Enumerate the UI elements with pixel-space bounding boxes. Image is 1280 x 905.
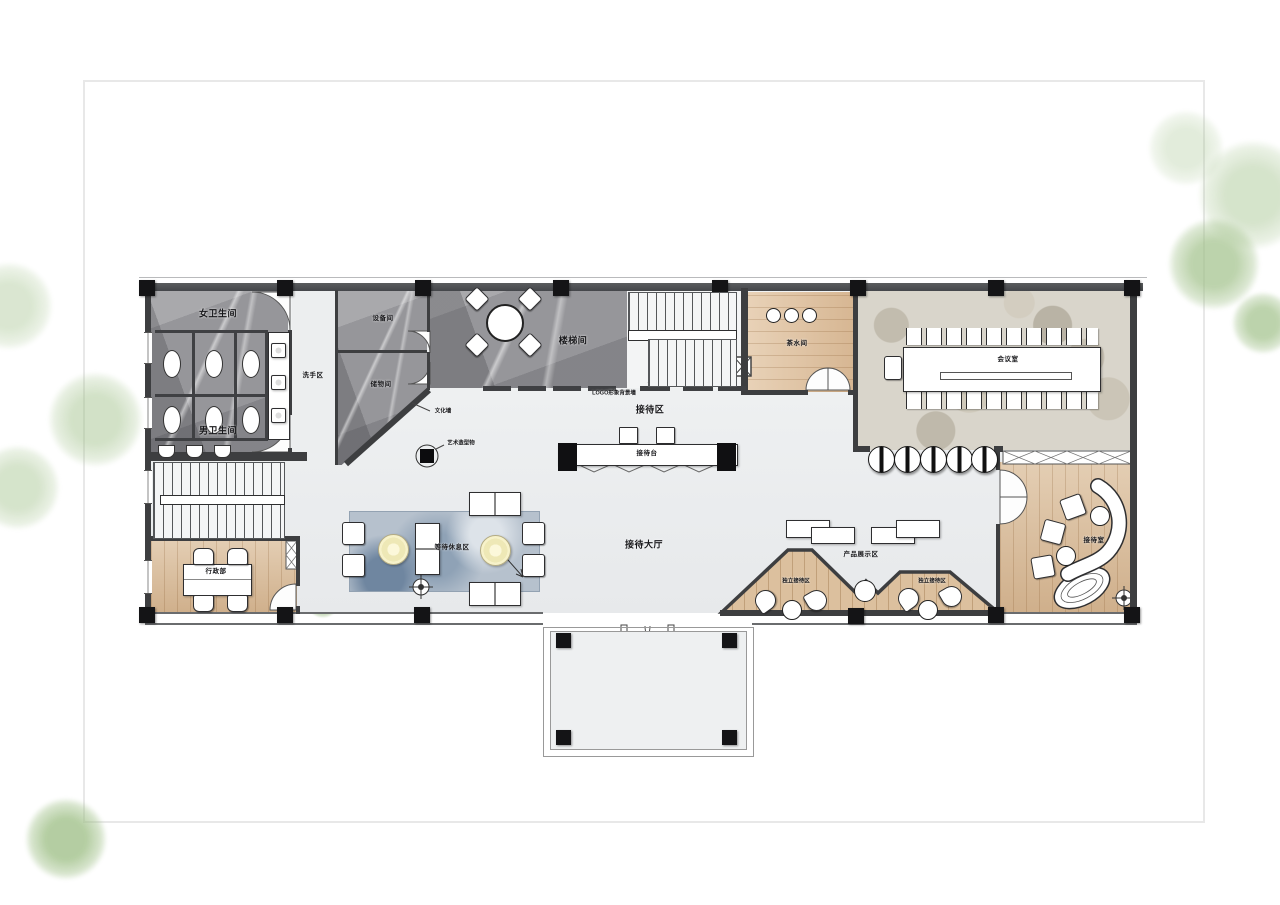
room-label-women-restroom: 女卫生间 bbox=[199, 310, 237, 319]
toilet bbox=[242, 350, 260, 378]
reception-room-floor bbox=[1000, 462, 1132, 612]
exterior-wall-bottom bbox=[752, 623, 1137, 625]
room-label-men-restroom: 男卫生间 bbox=[199, 427, 237, 436]
stall-wall bbox=[155, 438, 265, 441]
round-table bbox=[486, 304, 524, 342]
zone-label-private-reception-left: 独立接待区 bbox=[782, 579, 810, 585]
wall bbox=[427, 290, 430, 332]
meeting-chair-row bbox=[906, 392, 1098, 409]
wall bbox=[741, 288, 748, 395]
conference-table bbox=[903, 347, 1101, 392]
wall-outline bbox=[139, 277, 1147, 278]
round-column bbox=[894, 446, 921, 473]
armchair bbox=[1030, 554, 1055, 579]
logo-wall-segment bbox=[518, 386, 546, 391]
room-label-equipment: 设备间 bbox=[373, 316, 394, 323]
logo-wall-segment bbox=[553, 386, 581, 391]
porch-inner bbox=[550, 631, 747, 750]
annotation-logo-wall: LOGO形象背景墙 bbox=[592, 391, 636, 397]
wall bbox=[996, 524, 1000, 612]
room-label-admin: 行政部 bbox=[206, 569, 227, 576]
wall bbox=[296, 540, 300, 586]
annotation-culture-wall: 文化墙 bbox=[435, 409, 452, 415]
urinal bbox=[214, 445, 231, 458]
sculpture bbox=[420, 449, 434, 463]
zone-label-waiting-lounge: 等待休息区 bbox=[435, 545, 470, 552]
tree-icon bbox=[48, 372, 143, 467]
tree-icon bbox=[0, 262, 53, 350]
column bbox=[988, 280, 1004, 296]
room-label-reception-room: 接待室 bbox=[1084, 538, 1105, 545]
chair bbox=[227, 548, 248, 565]
column bbox=[988, 607, 1004, 623]
column bbox=[414, 607, 430, 623]
chair bbox=[884, 356, 902, 380]
sink bbox=[271, 375, 286, 390]
round-table bbox=[1056, 546, 1076, 566]
stall-wall bbox=[234, 330, 237, 441]
chair bbox=[193, 595, 214, 612]
wall bbox=[744, 390, 808, 395]
column bbox=[139, 280, 155, 296]
armchair bbox=[522, 522, 545, 545]
stall-wall bbox=[155, 394, 265, 397]
round-table bbox=[782, 600, 802, 620]
porch-column bbox=[722, 730, 737, 745]
toilet bbox=[242, 406, 260, 434]
sink bbox=[271, 343, 286, 358]
meeting-chair-row bbox=[906, 328, 1098, 345]
display-table bbox=[811, 527, 855, 544]
round-column bbox=[971, 446, 998, 473]
chair bbox=[193, 548, 214, 565]
round-column bbox=[920, 446, 947, 473]
desk-end-block bbox=[558, 443, 577, 471]
column bbox=[139, 607, 155, 623]
stall-wall bbox=[192, 330, 195, 441]
chair bbox=[227, 595, 248, 612]
room-label-stair-hall: 楼梯间 bbox=[559, 337, 588, 346]
column bbox=[277, 607, 293, 623]
zone-label-reception: 接待区 bbox=[636, 406, 665, 415]
column bbox=[850, 280, 866, 296]
zone-label-product-display: 产品展示区 bbox=[844, 552, 879, 559]
column bbox=[848, 608, 864, 624]
room-label-reception-hall: 接待大厅 bbox=[625, 541, 663, 550]
round-table bbox=[918, 600, 938, 620]
tree-icon bbox=[0, 445, 60, 530]
exterior-wall-right bbox=[1130, 283, 1137, 625]
floor-plan-page: 女卫生间 男卫生间 洗手区 设备间 储物间 楼梯间 茶水间 会议室 接待区 接待… bbox=[0, 0, 1280, 905]
sofa bbox=[469, 492, 521, 516]
armchair bbox=[342, 522, 365, 545]
toilet bbox=[163, 350, 181, 378]
conference-table-detail bbox=[940, 372, 1072, 380]
display-table bbox=[896, 520, 940, 538]
sofa bbox=[469, 582, 521, 606]
wall bbox=[427, 352, 430, 390]
stair-landing bbox=[160, 495, 285, 505]
porch-column bbox=[556, 633, 571, 648]
round-table bbox=[1090, 506, 1110, 526]
zone-label-private-reception-right: 独立接待区 bbox=[918, 579, 946, 585]
column bbox=[1124, 607, 1140, 623]
desk-end-block bbox=[717, 443, 736, 471]
window bbox=[144, 470, 152, 504]
annotation-sculpture: 艺术造型物 bbox=[447, 441, 475, 447]
stall-wall bbox=[155, 330, 265, 333]
column bbox=[415, 280, 431, 296]
room-label-wash-area: 洗手区 bbox=[303, 373, 324, 380]
tree-icon bbox=[25, 798, 107, 880]
wall bbox=[338, 350, 427, 353]
column bbox=[1124, 280, 1140, 296]
wall bbox=[853, 290, 858, 452]
chair bbox=[619, 427, 638, 444]
wall bbox=[335, 290, 338, 465]
wall bbox=[296, 606, 300, 614]
staircase bbox=[628, 292, 737, 332]
column bbox=[277, 280, 293, 296]
room-label-tea-room: 茶水间 bbox=[787, 341, 808, 348]
wall bbox=[858, 446, 870, 452]
window bbox=[144, 560, 152, 594]
round-table bbox=[854, 580, 876, 602]
urinal bbox=[186, 445, 203, 458]
exterior-wall-bottom bbox=[145, 612, 543, 614]
tree-icon bbox=[1232, 292, 1280, 354]
armchair bbox=[522, 554, 545, 577]
label-reception-desk: 接待台 bbox=[637, 451, 658, 458]
round-column bbox=[868, 446, 895, 473]
armchair bbox=[342, 554, 365, 577]
toilet bbox=[205, 350, 223, 378]
exterior-wall-bottom bbox=[145, 623, 543, 625]
sink bbox=[271, 408, 286, 423]
tea-stool bbox=[802, 308, 817, 323]
porch-column bbox=[722, 633, 737, 648]
staircase bbox=[648, 339, 737, 387]
window bbox=[144, 332, 152, 364]
tea-stool bbox=[766, 308, 781, 323]
logo-wall-segment bbox=[483, 386, 511, 391]
porch-column bbox=[556, 730, 571, 745]
column bbox=[553, 280, 569, 296]
urinal bbox=[158, 445, 175, 458]
chair bbox=[656, 427, 675, 444]
coffee-table bbox=[480, 535, 511, 566]
window bbox=[144, 397, 152, 429]
room-label-storage: 储物间 bbox=[371, 382, 392, 389]
room-label-meeting-room: 会议室 bbox=[998, 357, 1019, 364]
round-column bbox=[946, 446, 973, 473]
toilet bbox=[163, 406, 181, 434]
tea-stool bbox=[784, 308, 799, 323]
coffee-table bbox=[378, 534, 409, 565]
